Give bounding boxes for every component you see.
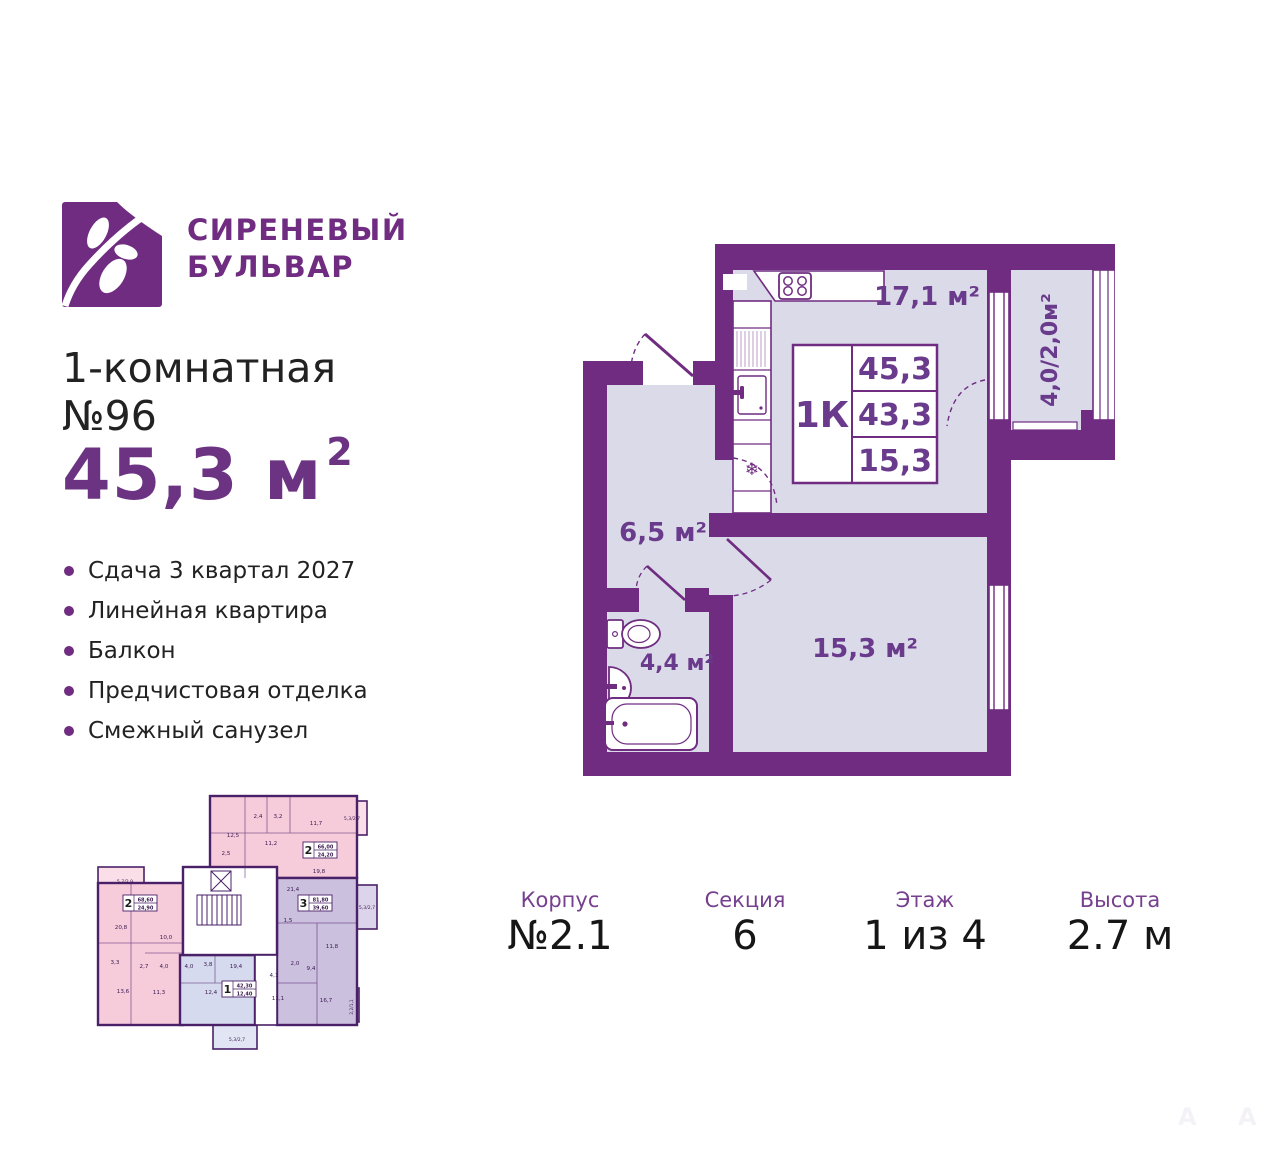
svg-text:4,0: 4,0 [185, 964, 194, 970]
listing-rooms-line: 1-комнатная [62, 344, 336, 392]
svg-text:3,3: 3,3 [111, 960, 120, 966]
listing-area-sup: 2 [326, 430, 353, 474]
svg-text:2,4: 2,4 [254, 814, 263, 820]
balcony-door-window [989, 292, 1009, 420]
feature-list: Сдача 3 квартал 2027 Линейная квартира Б… [64, 551, 368, 751]
fridge-snowflake-icon: ❄ [745, 460, 759, 480]
svg-text:3,2: 3,2 [274, 814, 283, 820]
plan-info-table: 1К 45,3 43,3 15,3 [793, 345, 937, 483]
kitchen-worktop [754, 271, 884, 301]
brand-name-line2: БУЛЬВАР [187, 249, 408, 286]
svg-text:20,8: 20,8 [115, 925, 128, 931]
plan-room-area-cell: 15,3 [858, 444, 932, 479]
svg-text:16,7: 16,7 [320, 998, 333, 1004]
brand-name: СИРЕНЕВЫЙ БУЛЬВАР [187, 212, 408, 286]
apartment-label: 2 66,00 24,20 [303, 842, 337, 859]
svg-text:11,1: 11,1 [272, 996, 285, 1002]
vent-shaft [723, 274, 747, 290]
svg-text:9,4: 9,4 [307, 966, 316, 972]
feature-label: Смежный санузел [88, 718, 308, 744]
svg-text:5,3/2,7: 5,3/2,7 [229, 1037, 245, 1043]
svg-text:3: 3 [300, 897, 308, 910]
svg-text:2,2/1,1: 2,2/1,1 [349, 999, 355, 1015]
feature-item: Смежный санузел [64, 711, 368, 751]
feature-item: Сдача 3 квартал 2027 [64, 551, 368, 591]
page: СИРЕНЕВЫЙ БУЛЬВАР 1-комнатная №96 45,3 м… [0, 0, 1280, 1160]
info-korpus: Корпус №2.1 [475, 888, 645, 959]
svg-text:4,1: 4,1 [270, 973, 279, 979]
svg-text:2,0: 2,0 [291, 961, 300, 967]
svg-text:2: 2 [305, 844, 313, 857]
svg-text:19,8: 19,8 [313, 869, 326, 875]
apartment-label: 1 42,30 12,40 [222, 981, 256, 998]
feature-label: Предчистовая отделка [88, 678, 368, 704]
feature-item: Линейная квартира [64, 591, 368, 631]
bullet-icon [64, 646, 74, 656]
svg-text:3,8: 3,8 [204, 962, 213, 968]
feature-item: Балкон [64, 631, 368, 671]
svg-text:12,4: 12,4 [205, 990, 218, 996]
svg-text:5,7/2,9: 5,7/2,9 [117, 879, 133, 885]
watermark-letter: А [1178, 1103, 1197, 1131]
info-label: Высота [1035, 888, 1205, 912]
svg-text:1: 1 [224, 983, 232, 996]
bath-area-label: 4,4 м² [640, 651, 714, 676]
svg-text:42,30: 42,30 [237, 984, 253, 990]
feature-label: Сдача 3 квартал 2027 [88, 558, 355, 584]
svg-text:5,3/2,7: 5,3/2,7 [359, 905, 375, 911]
brand-name-line1: СИРЕНЕВЫЙ [187, 212, 408, 249]
info-label: Корпус [475, 888, 645, 912]
bullet-icon [64, 726, 74, 736]
bullet-icon [64, 566, 74, 576]
listing-area-value: 45,3 м [62, 434, 322, 516]
bullet-icon [64, 606, 74, 616]
svg-text:2: 2 [125, 897, 133, 910]
plan-living-area: 43,3 [858, 398, 932, 433]
svg-text:2,7: 2,7 [140, 964, 149, 970]
room-area-label: 15,3 м² [812, 634, 918, 664]
apartment-label: 2 68,60 24,90 [123, 895, 157, 912]
info-value: 1 из 4 [840, 913, 1010, 959]
info-value: 2.7 м [1035, 913, 1205, 959]
svg-text:19,4: 19,4 [230, 964, 243, 970]
toilet-icon [607, 620, 660, 648]
room-window [989, 585, 1009, 710]
balcony-area-label: 4,0/2,0м² [1038, 293, 1063, 407]
plan-type-label: 1К [795, 395, 849, 436]
svg-text:5,3/2,7: 5,3/2,7 [344, 816, 360, 822]
info-label: Секция [660, 888, 830, 912]
svg-text:39,60: 39,60 [313, 906, 329, 912]
info-value: №2.1 [475, 913, 645, 959]
bathtub-icon [605, 698, 697, 750]
svg-text:81,80: 81,80 [313, 898, 329, 904]
svg-text:12,5: 12,5 [227, 833, 240, 839]
svg-text:2,5: 2,5 [222, 851, 231, 857]
svg-text:11,7: 11,7 [310, 821, 323, 827]
info-vysota: Высота 2.7 м [1035, 888, 1205, 959]
watermark-letter: А [1238, 1103, 1257, 1131]
svg-text:11,2: 11,2 [265, 841, 277, 847]
svg-text:66,00: 66,00 [318, 845, 334, 851]
sink-icon [733, 376, 766, 414]
svg-text:4,0: 4,0 [160, 964, 169, 970]
brand-logo-icon [62, 202, 162, 307]
plan-room-fills [607, 270, 1097, 752]
page-title: 1-комнатная №96 [62, 344, 336, 440]
feature-item: Предчистовая отделка [64, 671, 368, 711]
info-sektsiya: Секция 6 [660, 888, 830, 959]
feature-label: Балкон [88, 638, 176, 664]
svg-text:68,60: 68,60 [138, 898, 154, 904]
svg-text:12,40: 12,40 [237, 992, 253, 998]
apartment-floor-plan: ❄ [575, 230, 1115, 790]
kitchen-area-label: 17,1 м² [874, 282, 980, 312]
svg-text:1,5: 1,5 [284, 918, 293, 924]
bullet-icon [64, 686, 74, 696]
svg-text:11,8: 11,8 [326, 944, 339, 950]
svg-text:11,3: 11,3 [153, 990, 166, 996]
info-value: 6 [660, 913, 830, 959]
feature-label: Линейная квартира [88, 598, 328, 624]
apartment-label: 3 81,80 39,60 [298, 895, 332, 912]
svg-text:24,90: 24,90 [138, 906, 154, 912]
info-etazh: Этаж 1 из 4 [840, 888, 1010, 959]
info-label: Этаж [840, 888, 1010, 912]
svg-text:21,4: 21,4 [287, 887, 300, 893]
plan-total-area: 45,3 [858, 352, 932, 387]
svg-text:24,20: 24,20 [318, 853, 334, 859]
svg-text:13,6: 13,6 [117, 989, 130, 995]
floor-overview-plan: 2 66,00 24,20 3 81,80 39,60 2 68,60 24,9… [85, 783, 393, 1077]
svg-text:10,0: 10,0 [160, 935, 173, 941]
hall-area-label: 6,5 м² [619, 518, 707, 548]
listing-area: 45,3 м2 [62, 430, 354, 516]
